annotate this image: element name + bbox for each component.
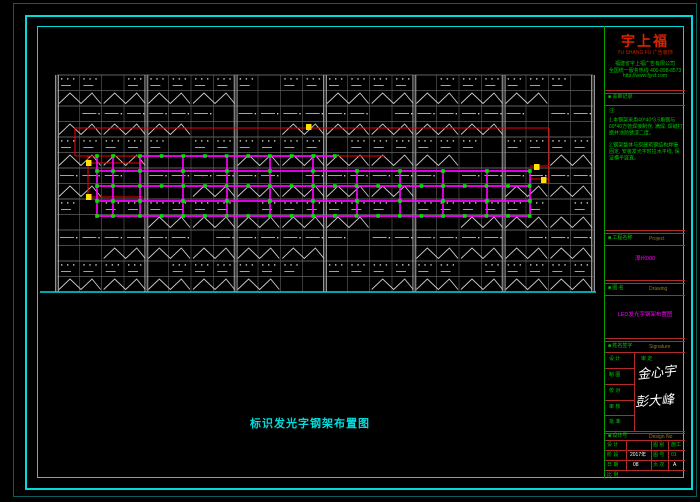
grid-line: [605, 440, 685, 441]
divider: [605, 338, 685, 339]
drawing-name-value: LED发光字钢架布置图: [605, 310, 685, 318]
cell-r3c4: A: [673, 462, 676, 468]
divider: [605, 341, 685, 342]
grid-line: [605, 450, 685, 451]
divider: [605, 283, 685, 284]
sig-row-label-approve: 批 准: [609, 419, 620, 425]
company-logo-sub: YU SHANG FU 广告装饰: [605, 48, 685, 56]
divider: [605, 90, 685, 91]
grid-vline: [626, 440, 627, 470]
cell-r1c1: 设 计: [607, 442, 618, 448]
scale-label: 比 例: [607, 472, 618, 478]
signature-sublabel: Signature: [649, 344, 670, 350]
grid-line: [605, 470, 685, 471]
cell-r3c1: 日 期: [607, 462, 618, 468]
grid-line: [605, 460, 685, 461]
divider: [605, 431, 685, 432]
cad-window: 标识发光字钢架布置图 宇上福 YU SHANG FU 广告装饰 福建省宇上福广告…: [0, 0, 700, 502]
signature-1: 金心宇: [636, 360, 677, 383]
cell-r2c1: 阶 段: [607, 452, 618, 458]
review-label: ■ 会审记录: [608, 94, 632, 100]
cell-r1c3: 图 别: [653, 442, 664, 448]
notes-title: 注:: [609, 108, 615, 114]
drawing-name-sublabel: Drawing: [649, 286, 667, 292]
cell-r2c2-date-year: 2017年: [630, 452, 646, 458]
drawing-name-label: ■ 图 名: [608, 285, 624, 291]
divider: [605, 295, 685, 296]
signature-label: ■ 姓名签字: [608, 343, 632, 349]
sig-row-line: [605, 400, 634, 401]
sig-row-line: [605, 368, 634, 369]
grid-vline: [668, 440, 669, 470]
divider: [605, 105, 685, 106]
divider: [605, 230, 685, 231]
sig-row-line: [605, 415, 634, 416]
cell-r2c4: 01: [671, 452, 677, 458]
signature-2: 彭大峰: [634, 389, 674, 411]
note-1: 1.本钢架采用40*40*3.5角钢与60*40方管焊接制作, 满焊, 焊缝打磨…: [609, 117, 683, 137]
sig-row-label-draft: 制 图: [609, 372, 620, 378]
sig-row-label-proof: 校 对: [609, 388, 620, 394]
cell-r2c3: 图 号: [653, 452, 664, 458]
cell-r3c3: 页 次: [653, 462, 664, 468]
note-2: 2.钢架整体与原建筑钢结构焊接固定, 安装发光字时拉水平线, 保证横平竖直。: [609, 142, 683, 162]
sig-right-label: 审 定: [641, 356, 652, 362]
title-block: 宇上福 YU SHANG FU 广告装饰 福建省宇上福广告有限公司 全国统一服务…: [604, 26, 685, 478]
divider: [605, 245, 685, 246]
project-name-value: 漳州000: [605, 254, 685, 262]
divider: [605, 280, 685, 281]
sig-row-line: [605, 384, 634, 385]
cell-r1c4: 施工: [671, 442, 681, 448]
sig-row-label-design: 设 计: [609, 356, 620, 362]
project-sublabel: Project: [649, 236, 665, 242]
drawing-caption: 标识发光字钢架布置图: [240, 415, 380, 431]
company-website: http://www.fjysf.com: [605, 73, 685, 79]
design-no-label: ■ 设计号: [608, 433, 627, 439]
project-label: ■ 工程名称: [608, 235, 632, 241]
sig-row-label-check: 审 核: [609, 404, 620, 410]
divider: [605, 352, 685, 353]
grid-vline: [651, 440, 652, 470]
cell-r3c2-date-month: 08: [633, 462, 639, 468]
divider: [605, 233, 685, 234]
